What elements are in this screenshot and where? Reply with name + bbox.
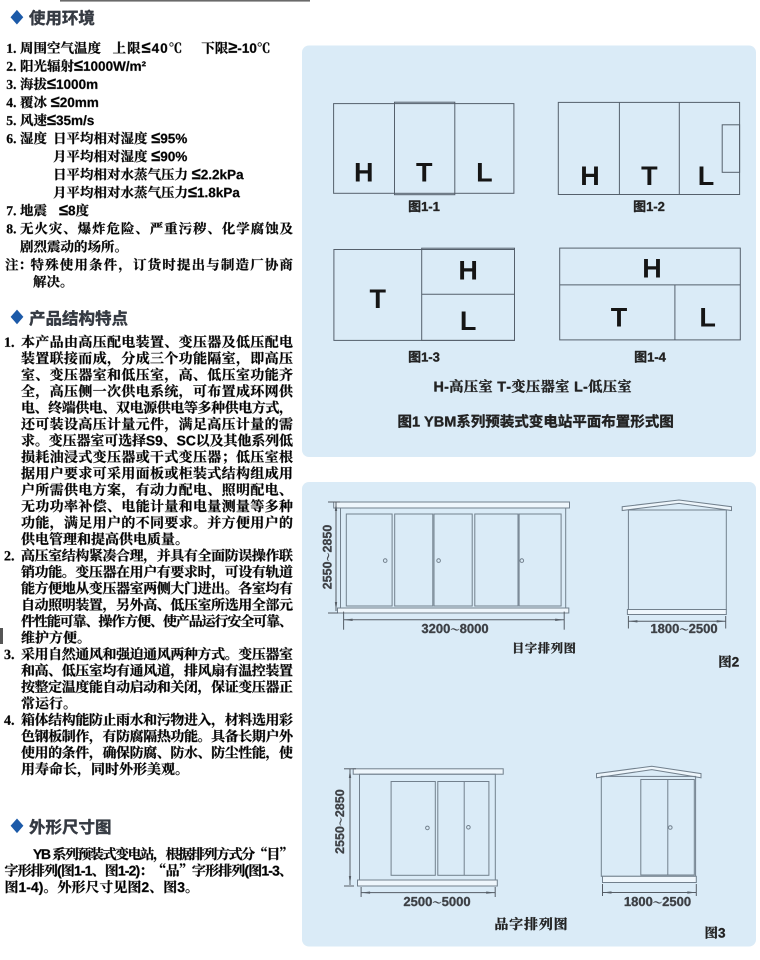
svg-text:H: H [642, 254, 662, 284]
svg-text:L: L [698, 161, 715, 191]
svg-text:L: L [699, 303, 716, 333]
svg-text:T: T [370, 284, 387, 314]
svg-text:H: H [354, 158, 374, 188]
svg-text:H: H [458, 256, 478, 286]
svg-text:L: L [476, 158, 493, 188]
svg-text:T: T [611, 303, 628, 333]
svg-text:T: T [641, 161, 658, 191]
svg-text:T: T [416, 158, 433, 188]
svg-text:H: H [580, 161, 600, 191]
svg-text:L: L [460, 306, 477, 336]
